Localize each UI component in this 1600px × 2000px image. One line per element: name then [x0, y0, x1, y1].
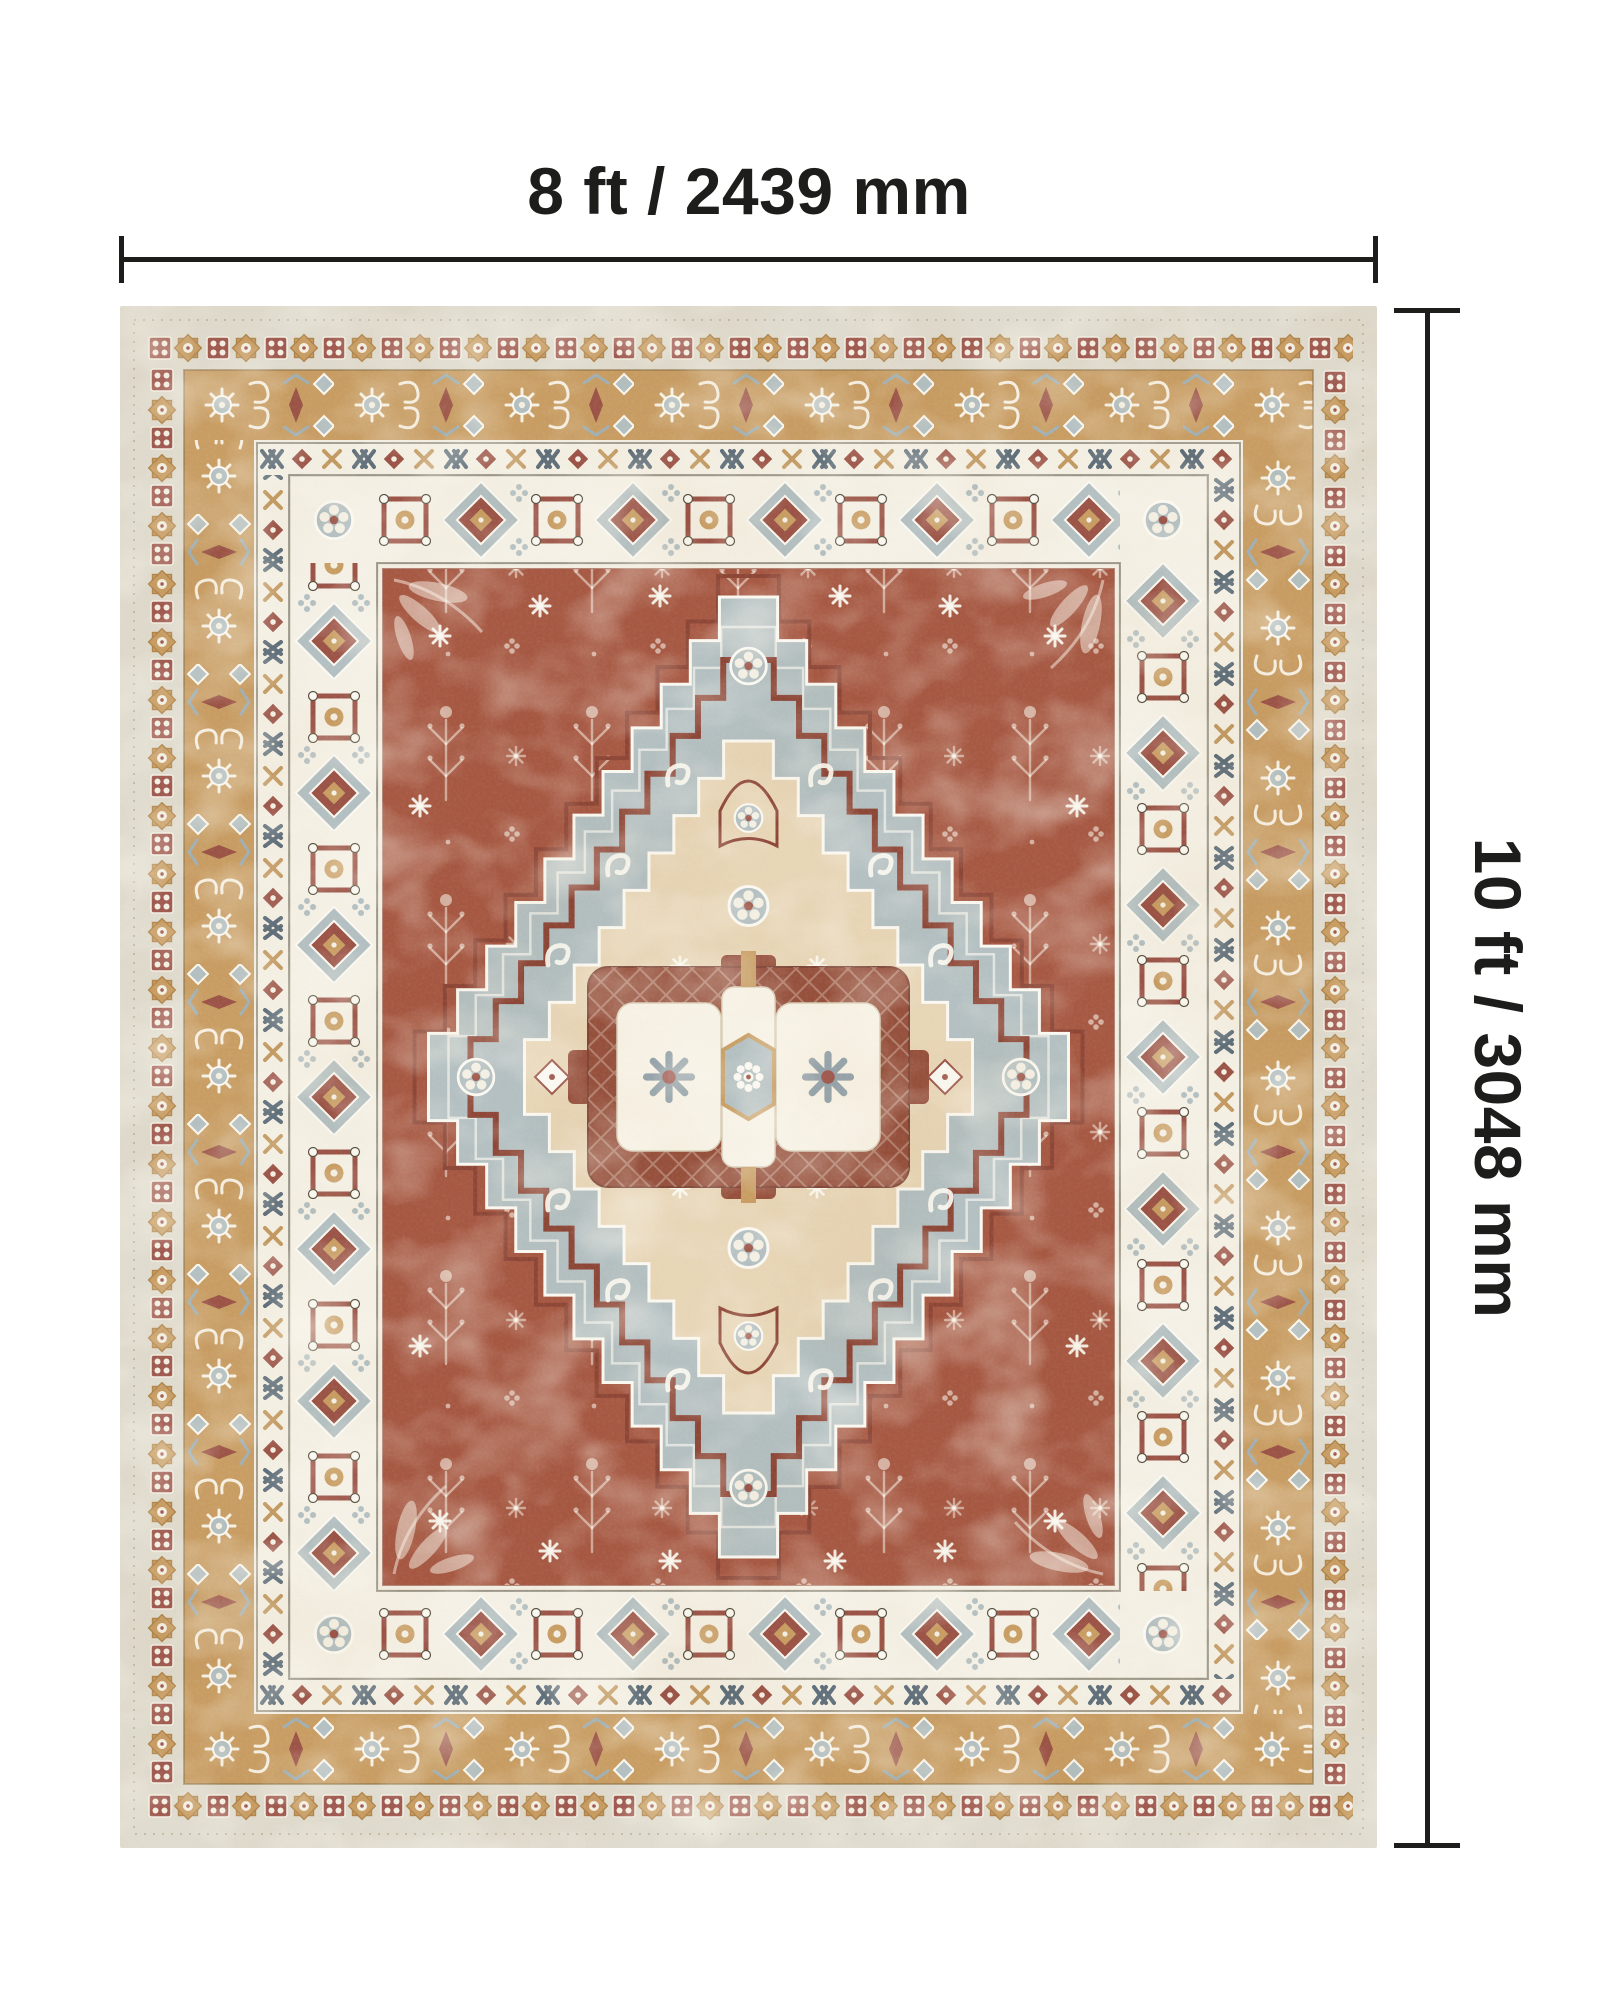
height-dimension-tick-bottom: [1394, 1843, 1460, 1848]
width-dimension-line: [121, 257, 1377, 262]
rug-worn-texture-overlay: [120, 306, 1377, 1848]
width-dimension-tick-left: [119, 236, 124, 283]
height-dimension-label: 10 ft / 3048 mm: [1465, 838, 1531, 1319]
width-dimension-tick-right: [1373, 236, 1378, 283]
height-dimension-line: [1425, 310, 1430, 1846]
rug-illustration: [120, 306, 1377, 1848]
height-dimension-tick-top: [1394, 308, 1460, 313]
width-dimension-label: 8 ft / 2439 mm: [121, 158, 1377, 224]
rug-image: [120, 306, 1377, 1848]
product-dimension-image: 8 ft / 2439 mm 10 ft / 3048 mm: [0, 0, 1600, 2000]
